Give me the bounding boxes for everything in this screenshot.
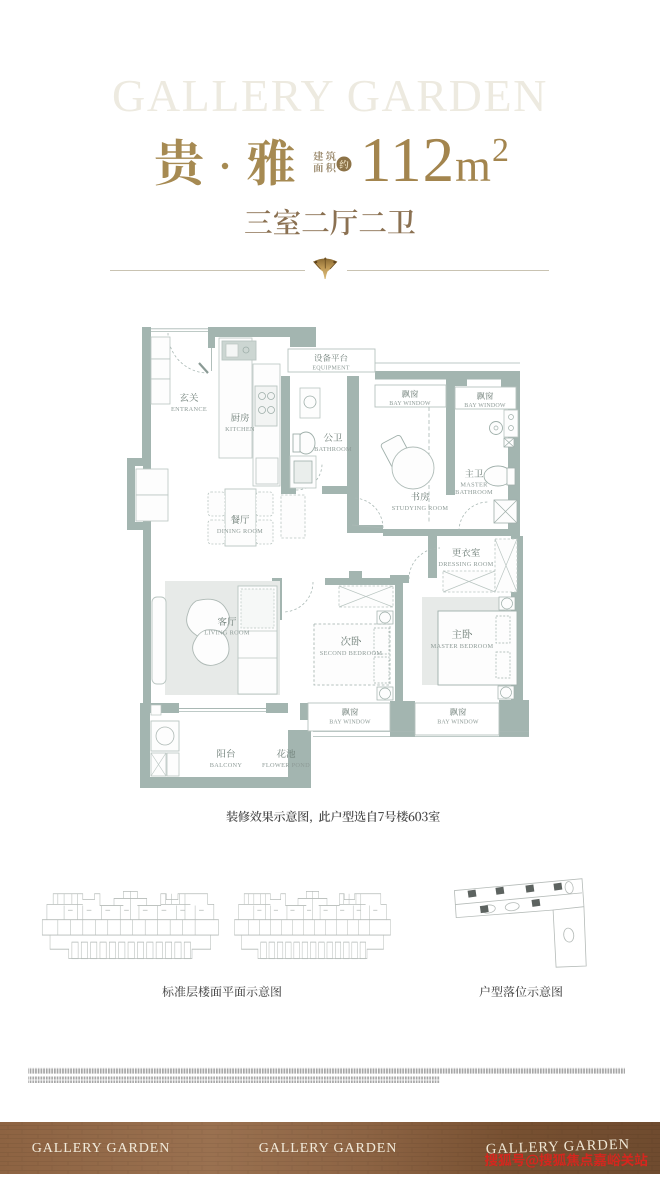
svg-text:BAY WINDOW: BAY WINDOW: [437, 720, 479, 726]
svg-text:SECOND BEDROOM: SECOND BEDROOM: [320, 650, 383, 657]
svg-text:EQUIPMENT: EQUIPMENT: [312, 366, 349, 372]
svg-text:MASTER BEDROOM: MASTER BEDROOM: [431, 643, 494, 650]
svg-text:MASTER: MASTER: [460, 482, 488, 489]
svg-text:STUDYING ROOM: STUDYING ROOM: [392, 505, 449, 512]
svg-text:LIVING ROOM: LIVING ROOM: [204, 630, 250, 637]
svg-text:BATHROOM: BATHROOM: [314, 446, 352, 453]
svg-text:DRESSING ROOM: DRESSING ROOM: [438, 561, 493, 568]
svg-text:DINING ROOM: DINING ROOM: [217, 528, 263, 535]
svg-text:KITCHEN: KITCHEN: [225, 426, 255, 433]
svg-text:BALCONY: BALCONY: [210, 762, 243, 769]
svg-text:BAY WINDOW: BAY WINDOW: [389, 401, 431, 407]
svg-text:GALLERY GARDEN: GALLERY GARDEN: [259, 1141, 397, 1156]
svg-text:GALLERY GARDEN: GALLERY GARDEN: [112, 70, 548, 121]
svg-text:FLOWER POND: FLOWER POND: [262, 762, 310, 769]
svg-text:GALLERY GARDEN: GALLERY GARDEN: [32, 1141, 170, 1156]
svg-text:ENTRANCE: ENTRANCE: [171, 406, 207, 413]
svg-text:BAY WINDOW: BAY WINDOW: [464, 403, 506, 409]
svg-text:BATHROOM: BATHROOM: [455, 489, 493, 496]
svg-text:BAY WINDOW: BAY WINDOW: [329, 720, 371, 726]
